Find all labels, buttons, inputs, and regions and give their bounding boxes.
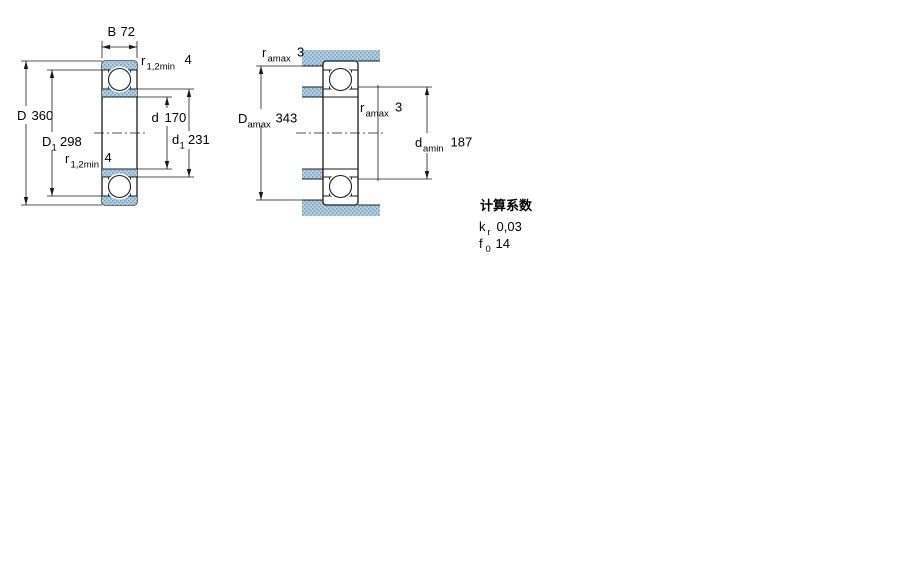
dim-d-symbol: d [152,110,159,125]
fillet-symbol: r [360,100,365,115]
drawing-canvas: B 72 r 1,2min 4 D 360 D [0,0,900,560]
fillet-symbol: r [141,53,146,68]
arrowhead [24,197,28,205]
dim-D-value: 360 [32,108,54,123]
dim-damin-value: 187 [451,135,473,150]
arrowhead [259,66,263,74]
fillet-subscript: amax [268,54,291,65]
dim-d1-symbol: d [172,132,179,147]
dim-d1-subscript: 1 [180,141,185,152]
calculation-factors: 计算系数 k r 0,03 f 0 14 [479,198,533,255]
dim-housing-abutment-Damax: D amax 343 [238,66,302,200]
ball-top [109,69,131,91]
arrowhead [187,89,191,97]
dim-Damax-subscript: amax [248,120,271,131]
fillet-value: 4 [105,150,112,165]
fillet-symbol: r [262,45,267,60]
factor-f0-row: f 0 14 [479,236,510,255]
dim-shoulder-D1: D 1 298 [42,70,102,196]
factor-kr-subscript: r [488,227,491,238]
dim-B-value: 72 [121,24,135,39]
arrowhead [129,45,137,49]
dim-fillet-top: r 1,2min 4 [141,52,192,73]
factor-kr-symbol: k [479,219,486,234]
arrowhead [425,171,429,179]
arrowhead [187,169,191,177]
dim-D1-value: 298 [60,134,82,149]
fillet-symbol: r [65,151,70,166]
arrowhead [102,45,110,49]
shaft-shoulder-bottom [302,169,323,179]
factor-kr-value: 0,03 [497,219,522,234]
dim-d-value: 170 [165,110,187,125]
fillet-subscript: 1,2min [147,62,176,73]
dim-B-symbol: B [108,24,117,39]
fillet-subscript: amax [366,109,389,120]
arrowhead [165,161,169,169]
factor-f0-symbol: f [479,236,483,251]
fillet-value: 3 [395,100,402,115]
front-view: B 72 r 1,2min 4 D 360 D [17,24,210,205]
dim-damin-subscript: amin [423,144,444,155]
arrowhead [259,192,263,200]
dim-width-B: B 72 [102,24,137,58]
dim-damin-symbol: d [415,135,422,150]
dim-housing-fillet: r amax 3 [262,45,304,65]
arrowhead [425,87,429,95]
ball-bottom [109,176,131,198]
dim-d1-value: 231 [188,132,210,147]
arrowhead [24,61,28,69]
fillet-value: 3 [297,45,304,60]
calculation-factors-heading: 计算系数 [480,198,533,213]
dim-D-symbol: D [17,108,26,123]
dim-Damax-value: 343 [276,111,298,126]
dim-shoulder-d1: d 1 231 [137,89,210,177]
mounted-view: r amax 3 D amax 343 r amax 3 [238,45,472,217]
factor-f0-subscript: 0 [486,244,491,255]
dim-D1-subscript: 1 [52,143,57,154]
bearing-datasheet-drawing: B 72 r 1,2min 4 D 360 D [0,0,900,560]
arrowhead [165,97,169,105]
ball-top [330,69,352,91]
dim-shaft-fillet: r amax 3 [360,100,402,120]
shaft-shoulder-top [302,87,323,97]
fillet-subscript: 1,2min [71,160,100,171]
arrowhead [50,188,54,196]
fillet-value: 4 [185,52,192,67]
factor-f0-value: 14 [496,236,510,251]
ball-bottom [330,176,352,198]
arrowhead [50,70,54,78]
dim-outer-diameter-D: D 360 [17,61,102,205]
dim-Damax-symbol: D [238,111,247,126]
dim-D1-symbol: D [42,134,51,149]
